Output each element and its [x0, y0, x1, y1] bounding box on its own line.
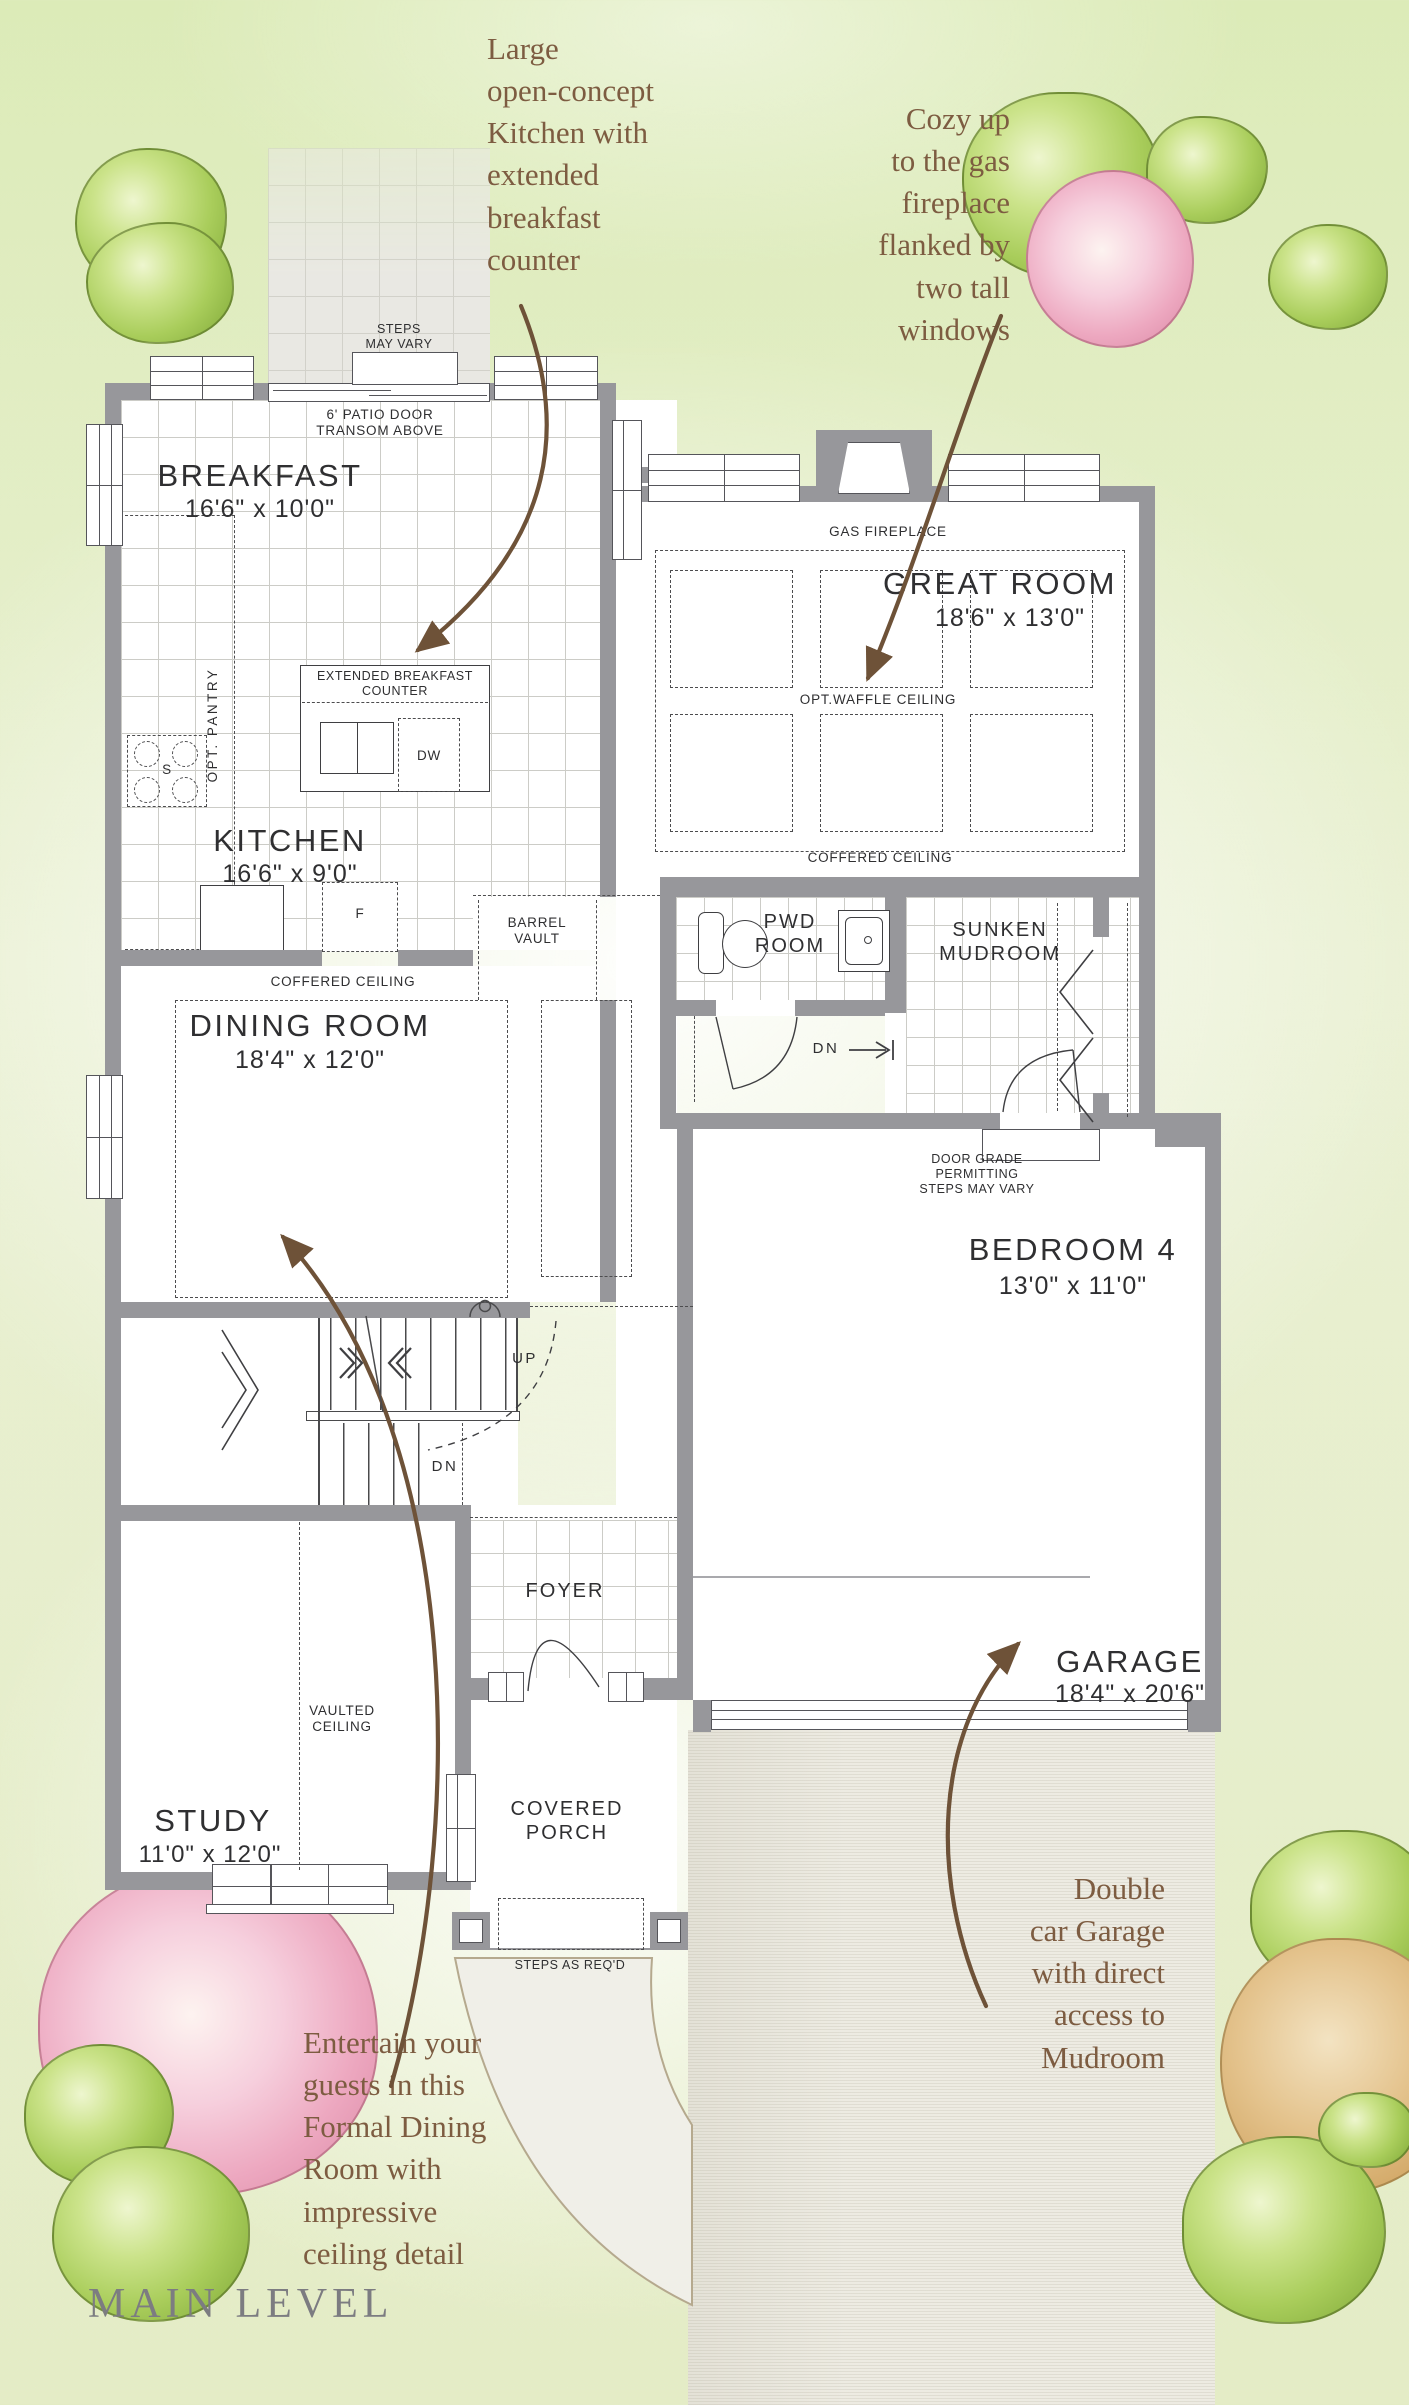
bifold-door-icon [1060, 950, 1093, 1122]
stair-detail [366, 1301, 500, 1413]
linework-overlay [0, 0, 1409, 2405]
annotation-arrow [283, 306, 1018, 2086]
bifold-door-icon [222, 1330, 258, 1450]
door-swing-icon [428, 1017, 1080, 1691]
dn-arrow-icon [849, 1040, 893, 1060]
